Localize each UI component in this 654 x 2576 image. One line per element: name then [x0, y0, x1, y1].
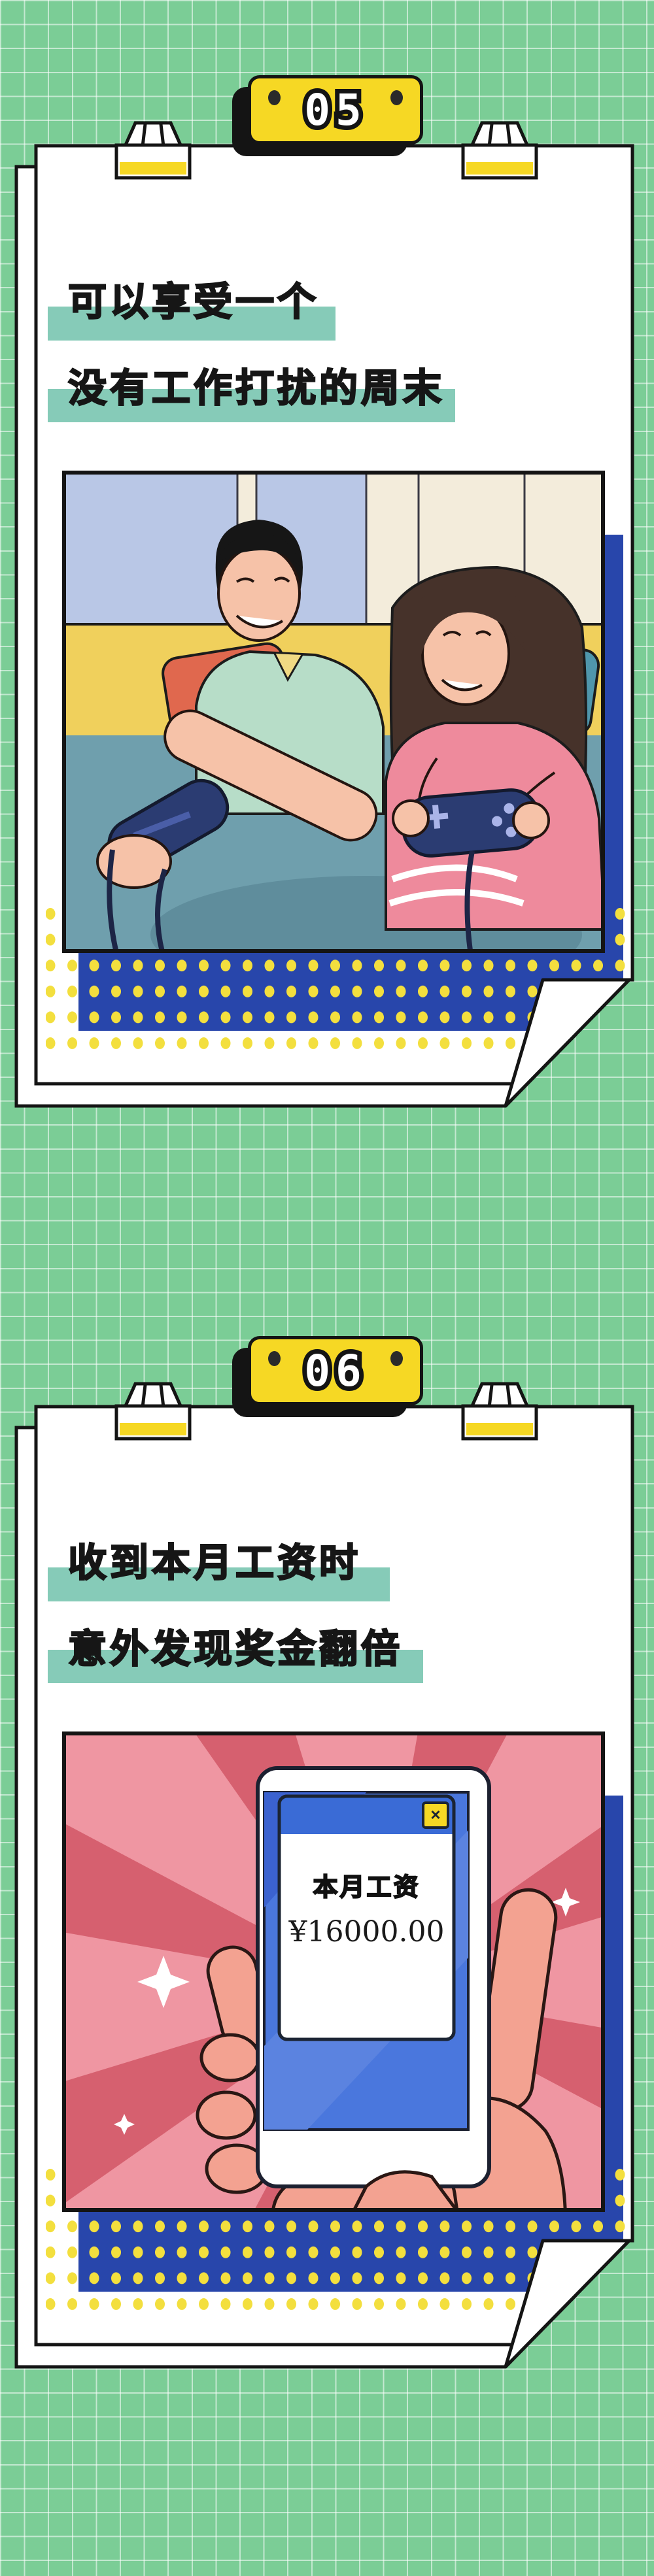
binder-clip-icon	[114, 1381, 192, 1441]
binder-clip-icon	[460, 120, 539, 180]
card-title-line1: 可以享受一个	[68, 279, 319, 325]
card-title-line1: 收到本月工资时	[68, 1540, 361, 1586]
badge-number: 05	[251, 89, 420, 132]
badge-face: 06 06	[248, 1336, 423, 1405]
badge-06: 06 06	[232, 1336, 423, 1418]
salary-amount: ¥16000.00	[279, 1915, 454, 1949]
poster-page: { "page": { "background_color": "#7bcd96…	[0, 0, 654, 2576]
salary-window-title: 本月工资	[279, 1867, 454, 1903]
card-title-line2: 意外发现奖金翻倍	[68, 1626, 403, 1672]
badge-face: 05 05	[248, 75, 423, 144]
badge-number: 06	[251, 1350, 420, 1393]
binder-clip-icon	[114, 120, 192, 180]
binder-clip-icon	[460, 1381, 539, 1441]
illustration-salary-phone	[62, 1731, 605, 2212]
illustration-couple-gaming	[62, 471, 605, 953]
window-close-button: ×	[422, 1801, 449, 1829]
card-title-line2: 没有工作打扰的周末	[68, 365, 445, 411]
badge-05: 05 05	[232, 75, 423, 158]
